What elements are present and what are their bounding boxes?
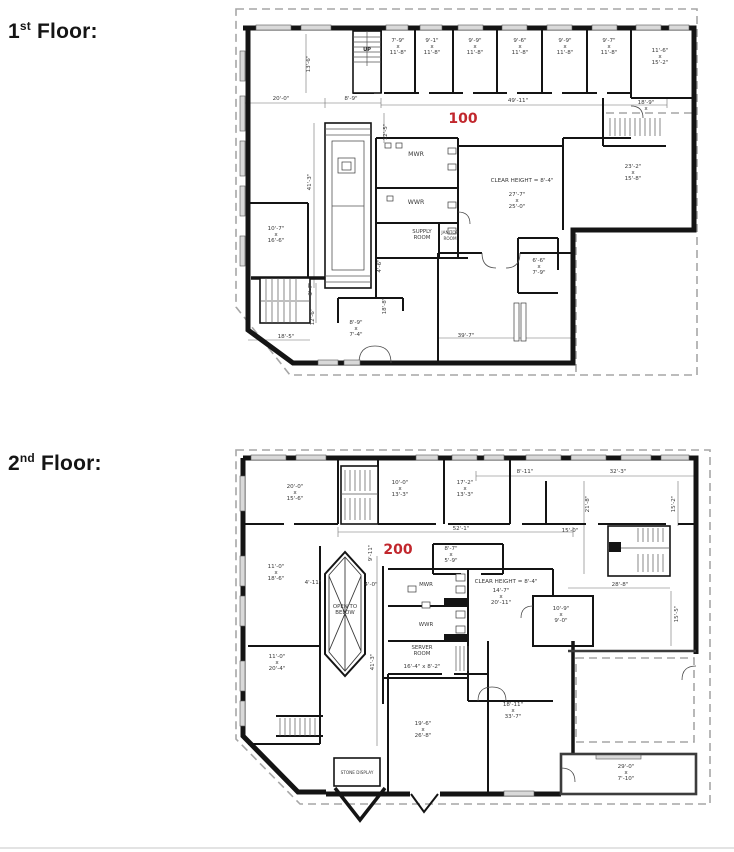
floor1-title: 1st Floor: xyxy=(8,19,98,44)
plan-label: 9'-9"x11'-8" xyxy=(557,38,574,56)
plan-label: 9'-7"x11'-8" xyxy=(601,38,618,56)
plan-label: 23'-2"x15'-8" xyxy=(625,164,642,182)
floor2-stair-lower-left xyxy=(280,718,315,736)
plan-label: 18'-9"x xyxy=(638,100,655,112)
plan-label: 15'-5" xyxy=(674,605,680,622)
plan-label: 9'-9"x11'-8" xyxy=(467,38,484,56)
plan-label: 32'-3" xyxy=(610,469,627,475)
plan-label: 18'-8" xyxy=(382,297,388,314)
plan-label: 12'-5" xyxy=(383,123,389,140)
plan-label: 27'-7"x25'-0" xyxy=(509,192,526,210)
plan-label: 9'-1"x11'-8" xyxy=(424,38,441,56)
plan-label: 8'-11" xyxy=(517,469,534,475)
plan-label: 8'-9"x7'-4" xyxy=(349,320,363,338)
floor2-title: 2nd Floor: xyxy=(8,451,102,476)
floor2-washroom-fixtures xyxy=(408,574,468,641)
floor2-stair-right xyxy=(608,526,670,576)
plan-label: 10'-0"x13'-3" xyxy=(392,480,409,498)
plan-label: 15'-2" xyxy=(671,495,677,512)
plan-label: 11'-0"x20'-4" xyxy=(269,654,286,672)
floor2-property-line xyxy=(236,450,710,804)
plan-label: 16'-4" x 8'-2" xyxy=(404,664,441,670)
plan-label: 12'-6" xyxy=(310,308,316,325)
plan-label: UP xyxy=(363,47,371,53)
plan-label: 4'-0" xyxy=(364,582,378,588)
plan-label: 11'-0"x18'-6" xyxy=(268,564,285,582)
floor1-stair-right xyxy=(610,118,660,136)
floor1-stair-up xyxy=(353,31,381,93)
plan-label: 11'-6"x15'-2" xyxy=(652,48,669,66)
plan-label: 20'-0"x15'-6" xyxy=(287,484,304,502)
plan-label: JANITORROOM xyxy=(440,230,458,241)
plan-label: 15'-0" xyxy=(562,528,579,534)
floor1-plan: UP13'-6"7'-9"x11'-8"9'-1"x11'-8"9'-9"x11… xyxy=(226,6,734,390)
plan-label: MWR xyxy=(408,151,424,158)
plan-label: 8'-9" xyxy=(344,96,358,102)
plan-label: 52'-1" xyxy=(453,526,470,532)
plan-label: 14'-7"x20'-11" xyxy=(491,588,512,606)
plan-label: 39'-7" xyxy=(458,333,475,339)
plan-label: MWR xyxy=(419,582,433,588)
plan-label: 13'-6" xyxy=(306,55,312,72)
plan-label: 17'-2"x13'-3" xyxy=(457,480,474,498)
plan-label: 19'-6"x26'-8" xyxy=(415,721,432,739)
floor1-svg: UP13'-6"7'-9"x11'-8"9'-1"x11'-8"9'-9"x11… xyxy=(226,6,734,390)
plan-label: 100 xyxy=(448,111,477,127)
plan-label: STONE DISPLAY xyxy=(341,770,374,775)
plan-label: 21'-8" xyxy=(585,495,591,512)
floor1-stair-lower-left xyxy=(260,278,310,323)
plan-label: CLEAR HEIGHT = 8'-4" xyxy=(475,579,538,585)
plan-label: 4'-11" xyxy=(305,580,322,586)
floor2-stair-server xyxy=(456,646,468,671)
floor2-doors xyxy=(478,606,696,701)
plan-label: WWR xyxy=(419,622,434,628)
floor2-suite-29-room xyxy=(561,754,696,794)
plan-label: 18'-11"x33'-7" xyxy=(503,702,524,720)
plan-label: 10'-9"x9'-0" xyxy=(553,606,570,624)
plan-label: 28'-8" xyxy=(612,582,629,588)
floor2-walls xyxy=(243,458,696,794)
plan-label: 200 xyxy=(383,542,412,558)
floor2-plan: 20'-0"x15'-6"10'-0"x13'-3"17'-2"x13'-3"8… xyxy=(226,446,734,850)
plan-label: WWR xyxy=(408,199,425,206)
document-page: { "colors": {"suite_red": "#c1272d", "wa… xyxy=(0,0,734,852)
plan-label: 9'-11" xyxy=(368,544,374,561)
plan-label: CLEAR HEIGHT = 8'-4" xyxy=(491,178,554,184)
plan-label: 49'-11" xyxy=(508,98,529,104)
floor1-washroom-fixtures xyxy=(385,143,526,341)
plan-label: 18'-5" xyxy=(278,334,295,340)
plan-label: 4'-6" xyxy=(377,259,383,273)
page-divider xyxy=(0,847,734,849)
plan-label: 29'-0"x7'-10" xyxy=(618,764,635,782)
plan-label: 41'-3" xyxy=(370,653,376,670)
floor2-labels: 20'-0"x15'-6"10'-0"x13'-3"17'-2"x13'-3"8… xyxy=(268,469,680,782)
plan-label: SUPPLYROOM xyxy=(412,229,432,241)
plan-label: 9'-6"x11'-8" xyxy=(512,38,529,56)
plan-label: 6'-6"x7'-9" xyxy=(532,258,546,276)
plan-label: OPEN TOBELOW xyxy=(333,604,357,616)
plan-label: 8'-7"x5'-9" xyxy=(444,546,458,564)
plan-label: 20'-0" xyxy=(273,96,290,102)
plan-label: 10'-7"x16'-6" xyxy=(268,226,285,244)
floor2-svg: 20'-0"x15'-6"10'-0"x13'-3"17'-2"x13'-3"8… xyxy=(226,446,734,850)
plan-label: SERVERROOM xyxy=(411,645,432,657)
floor2-stair-top xyxy=(341,466,378,524)
plan-label: 7'-9"x11'-8" xyxy=(390,38,407,56)
floor1-elevator-core xyxy=(325,123,371,288)
plan-label: 41'-3" xyxy=(307,173,313,190)
plan-label: 3'-7" xyxy=(308,282,314,296)
